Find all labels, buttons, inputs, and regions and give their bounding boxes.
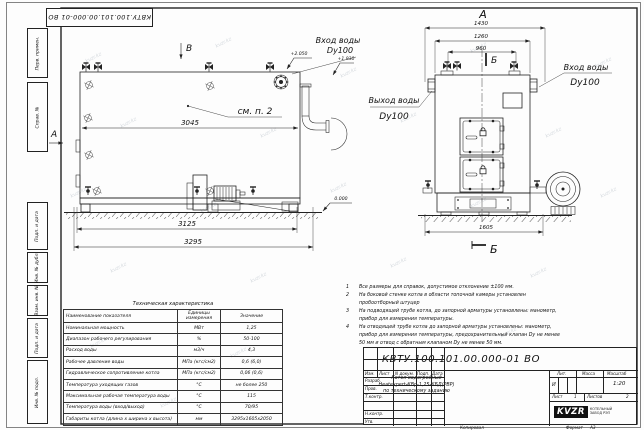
sheet-value: 1 xyxy=(574,394,577,399)
elev-2050: +2.050 xyxy=(290,51,307,57)
section-b-bottom-label: Б xyxy=(490,243,498,256)
water-outlet-label: Выход воды xyxy=(369,96,420,105)
view-a-top-label: А xyxy=(478,8,487,21)
frame-label-inv-dubl: Инв. № дубл. xyxy=(27,252,48,283)
row-prov: Пров. xyxy=(365,386,377,391)
dim-3295: 3295 xyxy=(184,238,202,246)
water-outlet-dn: Dy100 xyxy=(379,112,409,122)
valve-icon xyxy=(94,63,102,72)
drain-valve-icon xyxy=(194,187,200,195)
tech-row: Температура уходящих газов°Сне более 250 xyxy=(64,379,283,390)
tech-row: Номинальная мощностьМВт1,25 xyxy=(64,323,283,334)
kopiroval-label: Копировал xyxy=(460,425,484,430)
tech-header-row: Наименование показателя Единицы измерени… xyxy=(64,310,283,323)
valve-icon xyxy=(205,63,213,72)
col-data: Дата xyxy=(432,371,443,376)
dim-1430: 1430 xyxy=(474,21,488,27)
tech-table: Наименование показателя Единицы измерени… xyxy=(63,309,283,426)
valve-icon xyxy=(443,62,451,71)
note-item: 1Все размеры для справок, допустимое отк… xyxy=(346,284,560,292)
col-list: Лист xyxy=(379,371,389,376)
row-nkontr: Н.контр. xyxy=(365,411,383,416)
col-ndoc: N докум. xyxy=(395,371,414,376)
view-a-label: А xyxy=(50,130,57,140)
frame-label-inv-podl: Инв. № подл. xyxy=(27,360,48,424)
frame-label-vzam-inv: Взам. инв. № xyxy=(27,285,48,316)
mass-label: Масса xyxy=(582,371,595,376)
dim-1605: 1605 xyxy=(479,225,493,231)
sight-plate xyxy=(503,93,522,108)
dim-1260: 1260 xyxy=(474,34,488,40)
position-marker-icon xyxy=(81,111,95,125)
outlet-pipe xyxy=(300,84,347,150)
drain-valve-icon xyxy=(85,187,91,195)
section-b-top-label: Б xyxy=(491,56,497,66)
inlet-flange xyxy=(530,79,537,92)
kvzr-logo-subtext: КОТЕЛЬНЫЙ ЗАВОД РЭП xyxy=(590,408,612,416)
water-inlet-right-label: Вход воды xyxy=(564,63,609,72)
flange-icon xyxy=(274,75,288,89)
tech-table-title: Техническая характеристика xyxy=(63,301,283,307)
format-value: А3 xyxy=(590,425,596,430)
see-note-label: см. п. 2 xyxy=(238,107,273,117)
row-tkontr: Т.контр. xyxy=(365,394,383,399)
top-stamp-number: КВТУ.100.101.00.000-01 ВО xyxy=(48,14,151,22)
tech-row: Расход водым3/ч4,3 xyxy=(64,345,283,356)
valve-icon xyxy=(510,62,518,71)
blower-fan xyxy=(530,172,580,215)
sheets-value: 2 xyxy=(626,394,629,399)
position-marker-icon xyxy=(203,79,217,93)
water-inlet-right-dn: Dy100 xyxy=(570,78,600,88)
tech-row: Рабочее давление водыМПа (кгс/см2)0,6 (6… xyxy=(64,357,283,368)
lock-icon xyxy=(480,128,486,136)
water-inlet-dn: Dy100 xyxy=(327,46,353,55)
row-razrab: Разраб. xyxy=(365,378,381,383)
notes-list: 1Все размеры для справок, допустимое отк… xyxy=(346,284,560,348)
row-utv: Утв. xyxy=(365,419,374,424)
drawing-sheet: kvzr.kzkvzr.kzkvzr.kzkvzr.kzkvzr.kzkvzr.… xyxy=(0,0,644,430)
frame-label-perv-primen: Перв. примен. xyxy=(27,28,48,78)
kvzr-logo: KVZR xyxy=(554,406,588,418)
front-view: 1430 1260 960 А Б Б 1605 Выход воды xyxy=(369,8,612,256)
lit-label: Лит. xyxy=(557,371,566,376)
valve-icon xyxy=(266,63,274,72)
frame-label-podp-data-1: Подп. и дата xyxy=(27,202,48,250)
frame-label-sprav: Справ. № xyxy=(27,82,48,152)
dim-960: 960 xyxy=(476,46,487,52)
scale-label: Масштаб xyxy=(607,371,626,376)
scale-value: 1:20 xyxy=(613,381,625,387)
tech-characteristics: Техническая характеристика Наименование … xyxy=(63,301,283,426)
position-marker-icon xyxy=(90,184,104,198)
note-item: 3На подводящей трубе котла, до запорной … xyxy=(346,308,560,324)
sheet-label: Лист xyxy=(552,394,562,399)
dim-3045: 3045 xyxy=(181,119,199,127)
drain-valve-icon xyxy=(250,187,256,195)
elev-0000: 0.000 xyxy=(334,196,347,202)
col-podp: Подп. xyxy=(417,371,429,376)
tech-row: Гидравлическое сопротивление котлаМПа (к… xyxy=(64,368,283,379)
boiler-body-side xyxy=(80,72,300,198)
drain-valve-icon xyxy=(534,181,540,189)
tech-row: Диапазон рабочего регулирования%50-100 xyxy=(64,334,283,345)
sheets-label: Листов xyxy=(587,394,602,399)
dim-3125: 3125 xyxy=(178,220,196,228)
title-block: Изм. Лист N докум. Подп. Дата Разраб. Пр… xyxy=(363,347,637,425)
format-label: Формат xyxy=(566,425,583,430)
top-stamp: КВТУ.100.101.00.000-01 ВО xyxy=(46,8,153,27)
valve-icon xyxy=(82,63,90,72)
water-inlet-label: Вход воды xyxy=(316,36,361,45)
burner-fan-motor xyxy=(187,175,245,210)
outlet-flange xyxy=(428,79,435,92)
lit-value: И xyxy=(552,382,556,388)
tech-row: Температура воды (вход/выход)°С70/95 xyxy=(64,402,283,413)
tech-row: Максимальная рабочая температура воды°С1… xyxy=(64,391,283,402)
tech-row: Габариты котла (длина х ширина х высота)… xyxy=(64,414,283,425)
col-izm: Изм. xyxy=(365,371,375,376)
note-item: 4На отводящей трубе котла до запорной ар… xyxy=(346,324,560,348)
view-b-label: В xyxy=(186,44,192,54)
position-marker-icon xyxy=(82,78,96,92)
manufacturer-logo: KVZR КОТЕЛЬНЫЙ ЗАВОД РЭП xyxy=(554,406,612,418)
note-item: 2На боковой стенке котла в области топоч… xyxy=(346,292,560,308)
valve-icon xyxy=(453,62,461,71)
frame-label-podp-data-2: Подп. и дата xyxy=(27,318,48,358)
side-view: 3045 см. п. 2 В А +2.050 +1.930 0.000 Вх… xyxy=(49,36,360,251)
lock-icon xyxy=(480,166,486,174)
position-marker-icon xyxy=(82,148,96,162)
